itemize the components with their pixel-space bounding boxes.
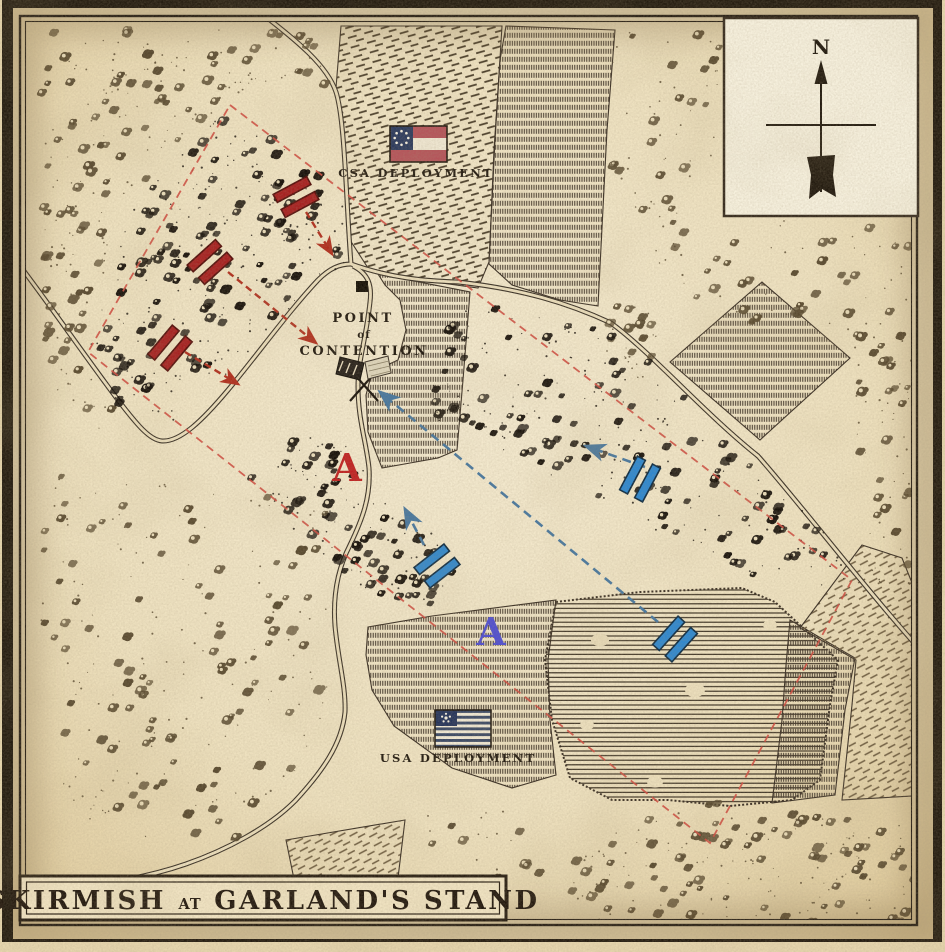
battle-map: POINT of CONTENTION CSA DEPLOYMENT <box>0 0 945 952</box>
compass-rose: N <box>724 18 918 216</box>
title-word1: SKIRMISH <box>0 886 166 916</box>
csa-objective-marker: A <box>331 445 362 490</box>
csa-deployment-label: CSA DEPLOYMENT <box>338 166 493 180</box>
usa-flag-icon <box>435 710 491 747</box>
poc-line3: CONTENTION <box>300 344 429 359</box>
usa-objective-marker: A <box>475 609 506 654</box>
title-banner: SKIRMISH AT GARLAND'S STAND <box>0 876 540 920</box>
field <box>489 26 615 306</box>
usa-deployment-label: USA DEPLOYMENT <box>380 751 536 765</box>
building-icon <box>356 281 368 292</box>
poc-line2: of <box>357 329 371 341</box>
poc-line1: POINT <box>332 311 393 326</box>
csa-flag-icon <box>390 126 447 162</box>
battle-map-svg: POINT of CONTENTION CSA DEPLOYMENT <box>0 0 945 952</box>
map-title: SKIRMISH AT GARLAND'S STAND <box>0 886 540 916</box>
title-connector: AT <box>177 896 201 913</box>
compass-north-label: N <box>812 35 830 59</box>
title-word2: GARLAND'S STAND <box>214 886 539 916</box>
